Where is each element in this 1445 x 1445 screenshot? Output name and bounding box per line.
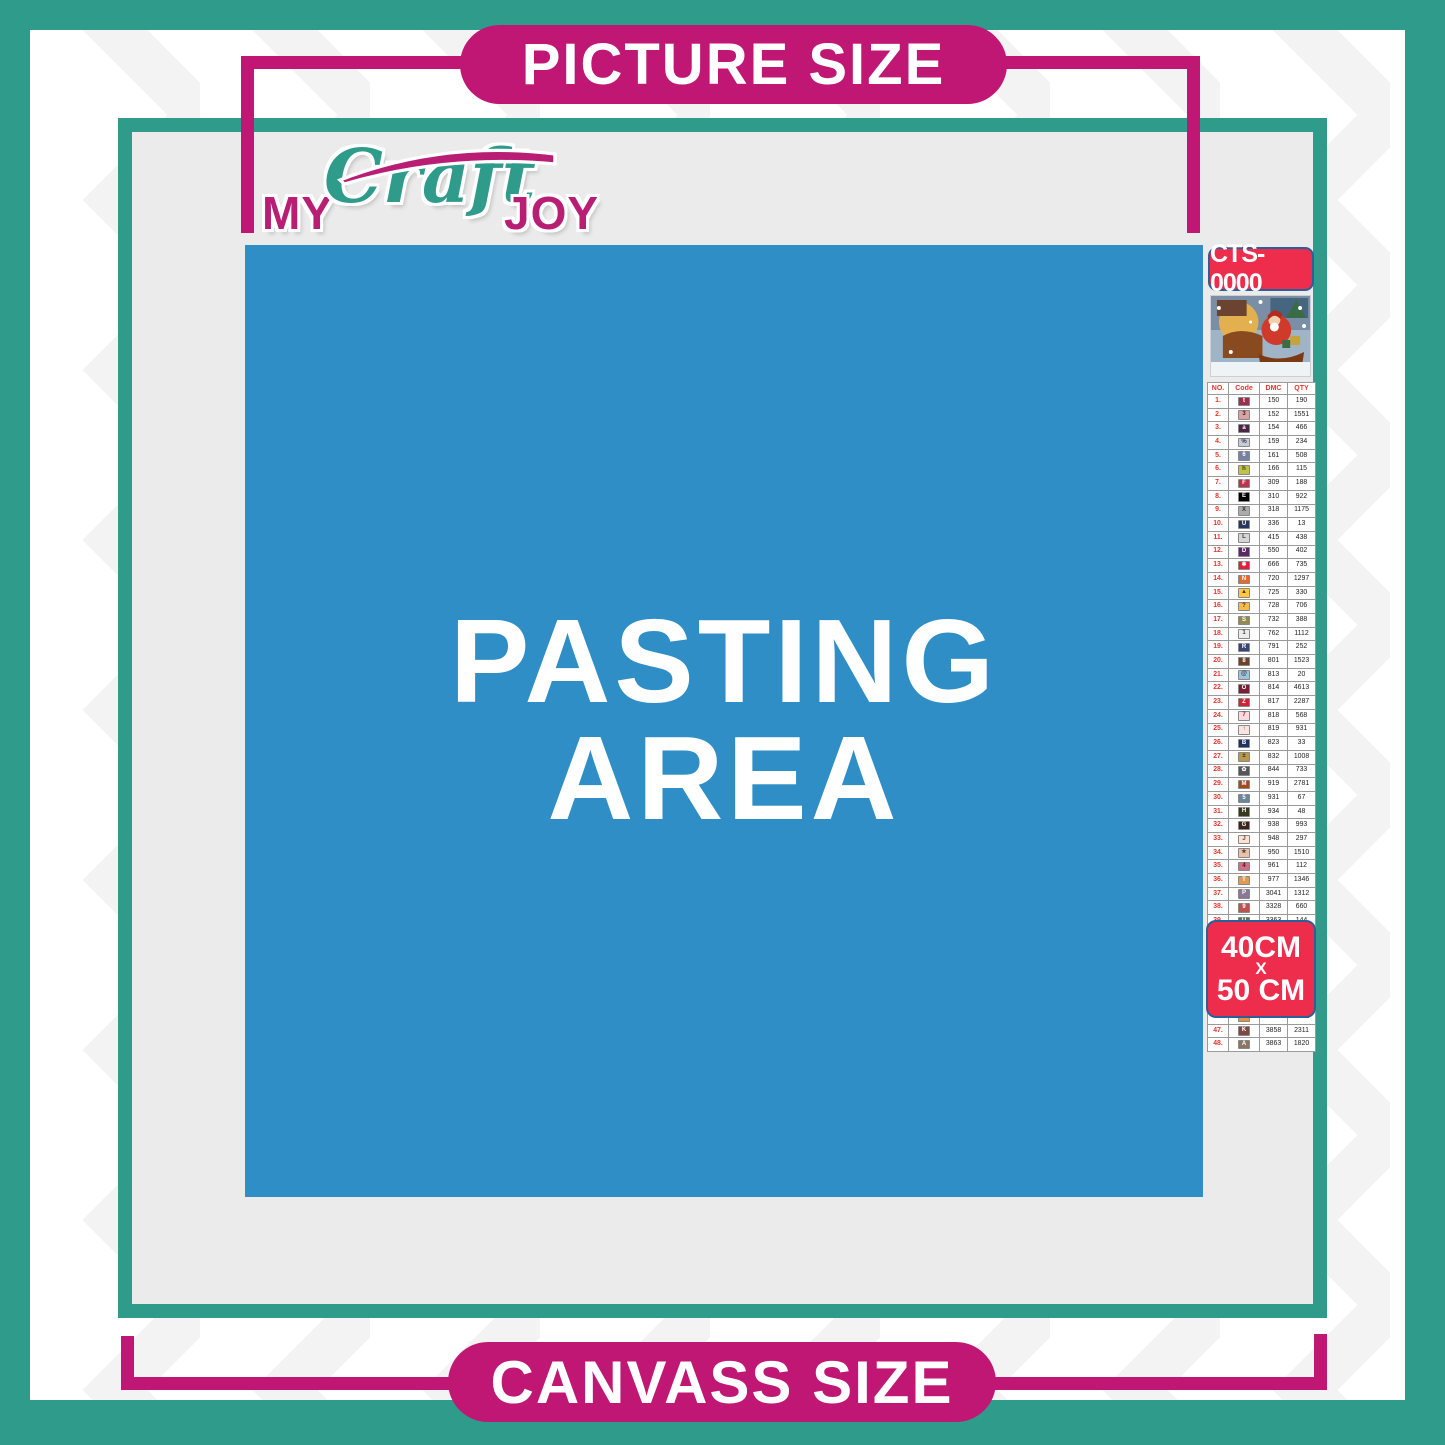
legend-row: 47.K38582311: [1208, 1024, 1316, 1038]
legend-code: ?: [1229, 600, 1260, 614]
legend-row: 32.G938993: [1208, 819, 1316, 833]
legend-symbol-swatch: J: [1238, 835, 1250, 845]
legend-row: 34.★9501510: [1208, 846, 1316, 860]
legend-dmc: 934: [1260, 805, 1288, 819]
legend-code: 6: [1229, 449, 1260, 463]
legend-no: 28.: [1208, 764, 1229, 778]
legend-symbol-swatch: ↑: [1238, 725, 1250, 735]
legend-no: 34.: [1208, 846, 1229, 860]
canvass-bracket-left: [121, 1336, 134, 1390]
legend-dmc: 720: [1260, 572, 1288, 586]
legend-qty: 190: [1288, 395, 1316, 409]
legend-dmc: 161: [1260, 449, 1288, 463]
legend-symbol-swatch: 7: [1238, 711, 1250, 721]
legend-symbol-swatch: A: [1238, 1040, 1250, 1050]
legend-dmc: 3041: [1260, 887, 1288, 901]
legend-symbol-swatch: U: [1238, 520, 1250, 530]
legend-symbol-swatch: h: [1238, 465, 1250, 475]
legend-symbol-swatch: 1: [1238, 629, 1250, 639]
legend-dmc: 938: [1260, 819, 1288, 833]
legend-qty: 1008: [1288, 750, 1316, 764]
legend-code: U: [1229, 518, 1260, 532]
legend-code: 8: [1229, 655, 1260, 669]
legend-qty: 330: [1288, 586, 1316, 600]
legend-no: 33.: [1208, 833, 1229, 847]
legend-header-cell: DMC: [1260, 383, 1288, 395]
legend-row: 24.7818568: [1208, 709, 1316, 723]
legend-dmc: 550: [1260, 545, 1288, 559]
legend-qty: 188: [1288, 477, 1316, 491]
legend-row: 30.593167: [1208, 791, 1316, 805]
legend-code: ±: [1229, 750, 1260, 764]
legend-no: 3.: [1208, 422, 1229, 436]
legend-symbol-swatch: N: [1238, 575, 1250, 585]
legend-no: 10.: [1208, 518, 1229, 532]
legend-dmc: 166: [1260, 463, 1288, 477]
legend-no: 36.: [1208, 874, 1229, 888]
legend-dmc: 801: [1260, 655, 1288, 669]
legend-row: 38.93328660: [1208, 901, 1316, 915]
legend-dmc: 961: [1260, 860, 1288, 874]
legend-qty: 1346: [1288, 874, 1316, 888]
legend-dmc: 336: [1260, 518, 1288, 532]
legend-symbol-swatch: ✿: [1238, 766, 1250, 776]
legend-row: 17.S732388: [1208, 614, 1316, 628]
legend-symbol-swatch: %: [1238, 438, 1250, 448]
legend-row: 48.A38631820: [1208, 1038, 1316, 1052]
legend-no: 23.: [1208, 696, 1229, 710]
legend-code: E: [1229, 490, 1260, 504]
legend-row: 37.P30411312: [1208, 887, 1316, 901]
legend-symbol-swatch: S: [1238, 616, 1250, 626]
legend-row: 6.h166115: [1208, 463, 1316, 477]
legend-code: S: [1229, 614, 1260, 628]
legend-row: 10.U33613: [1208, 518, 1316, 532]
legend-symbol-swatch: @: [1238, 670, 1250, 680]
legend-row: 20.88011523: [1208, 655, 1316, 669]
canvass-size-badge: CANVASS SIZE: [448, 1342, 996, 1422]
legend-dmc: 948: [1260, 833, 1288, 847]
legend-no: 16.: [1208, 600, 1229, 614]
legend-row: 14.N7201297: [1208, 572, 1316, 586]
legend-code: 4: [1229, 860, 1260, 874]
legend-dmc: 154: [1260, 422, 1288, 436]
legend-code: J: [1229, 833, 1260, 847]
legend-no: 6.: [1208, 463, 1229, 477]
legend-qty: 706: [1288, 600, 1316, 614]
legend-symbol-swatch: H: [1238, 807, 1250, 817]
legend-row: 1.t150190: [1208, 395, 1316, 409]
legend-no: 26.: [1208, 737, 1229, 751]
legend-no: 30.: [1208, 791, 1229, 805]
legend-row: 31.H93448: [1208, 805, 1316, 819]
legend-dmc: 150: [1260, 395, 1288, 409]
legend-row: 9.X3181175: [1208, 504, 1316, 518]
legend-symbol-swatch: t: [1238, 397, 1250, 407]
legend-symbol-swatch: ★: [1238, 848, 1250, 858]
christmas-scene-icon: [1211, 296, 1310, 376]
legend-no: 7.: [1208, 477, 1229, 491]
legend-code: A: [1229, 1038, 1260, 1052]
legend-row: 28.✿844733: [1208, 764, 1316, 778]
legend-dmc: 919: [1260, 778, 1288, 792]
legend-no: 1.: [1208, 395, 1229, 409]
legend-dmc: 152: [1260, 408, 1288, 422]
legend-qty: 568: [1288, 709, 1316, 723]
legend-qty: 1551: [1288, 408, 1316, 422]
legend-row: 3.a154466: [1208, 422, 1316, 436]
legend-qty: 733: [1288, 764, 1316, 778]
legend-symbol-swatch: ±: [1238, 752, 1250, 762]
legend-dmc: 819: [1260, 723, 1288, 737]
legend-no: 4.: [1208, 436, 1229, 450]
legend-code: L: [1229, 531, 1260, 545]
logo-brush-swoosh-icon: [340, 148, 555, 184]
legend-code: X: [1229, 504, 1260, 518]
legend-symbol-swatch: M: [1238, 780, 1250, 790]
legend-row: 23.Z8172287: [1208, 696, 1316, 710]
legend-qty: 735: [1288, 559, 1316, 573]
legend-no: 47.: [1208, 1024, 1229, 1038]
legend-dmc: 728: [1260, 600, 1288, 614]
legend-row: 19.R791252: [1208, 641, 1316, 655]
legend-symbol-swatch: E: [1238, 492, 1250, 502]
legend-no: 14.: [1208, 572, 1229, 586]
legend-code: 5: [1229, 791, 1260, 805]
legend-code: R: [1229, 641, 1260, 655]
legend-dmc: 732: [1260, 614, 1288, 628]
legend-code: ↑: [1229, 723, 1260, 737]
legend-no: 21.: [1208, 668, 1229, 682]
legend-symbol-swatch: 5: [1238, 794, 1250, 804]
legend-qty: 1297: [1288, 572, 1316, 586]
legend-row: 33.J948297: [1208, 833, 1316, 847]
legend-dmc: 3863: [1260, 1038, 1288, 1052]
legend-row: 25.↑819931: [1208, 723, 1316, 737]
picture-size-badge: PICTURE SIZE: [460, 25, 1007, 104]
legend-symbol-swatch: 8: [1238, 657, 1250, 667]
legend-dmc: 666: [1260, 559, 1288, 573]
legend-no: 22.: [1208, 682, 1229, 696]
legend-code: F: [1229, 477, 1260, 491]
legend-qty: 4613: [1288, 682, 1316, 696]
legend-dmc: 159: [1260, 436, 1288, 450]
legend-no: 20.: [1208, 655, 1229, 669]
legend-code: 7: [1229, 709, 1260, 723]
legend-code: M: [1229, 778, 1260, 792]
legend-qty: 660: [1288, 901, 1316, 915]
sku-label: CTS-0000: [1210, 240, 1312, 298]
legend-qty: 402: [1288, 545, 1316, 559]
pasting-area: PASTING AREA: [245, 245, 1203, 1197]
legend-symbol-swatch: Z: [1238, 698, 1250, 708]
legend-no: 15.: [1208, 586, 1229, 600]
legend-no: 31.: [1208, 805, 1229, 819]
legend-code: Z: [1229, 696, 1260, 710]
logo-joy: JOY: [504, 186, 599, 240]
legend-symbol-swatch: K: [1238, 1026, 1250, 1036]
legend-symbol-swatch: O: [1238, 684, 1250, 694]
legend-header-row: NO.CodeDMCQTY: [1208, 383, 1316, 395]
legend-qty: 2781: [1288, 778, 1316, 792]
legend-row: 21.@81320: [1208, 668, 1316, 682]
legend-dmc: 309: [1260, 477, 1288, 491]
legend-header-cell: QTY: [1288, 383, 1316, 395]
legend-no: 5.: [1208, 449, 1229, 463]
legend-header-cell: NO.: [1208, 383, 1229, 395]
legend-row: 11.L415438: [1208, 531, 1316, 545]
legend-symbol-swatch: ✱: [1238, 561, 1250, 571]
legend-symbol-swatch: 6: [1238, 451, 1250, 461]
legend-qty: 115: [1288, 463, 1316, 477]
legend-code: h: [1229, 463, 1260, 477]
legend-row: 13.✱666735: [1208, 559, 1316, 573]
legend-dmc: 762: [1260, 627, 1288, 641]
legend-symbol-swatch: B: [1238, 739, 1250, 749]
legend-dmc: 977: [1260, 874, 1288, 888]
legend-qty: 20: [1288, 668, 1316, 682]
legend-qty: 1312: [1288, 887, 1316, 901]
legend-symbol-swatch: G: [1238, 821, 1250, 831]
legend-dmc: 817: [1260, 696, 1288, 710]
legend-qty: 438: [1288, 531, 1316, 545]
legend-code: D: [1229, 545, 1260, 559]
legend-symbol-swatch: a: [1238, 424, 1250, 434]
legend-no: 48.: [1208, 1038, 1229, 1052]
legend-code: a: [1229, 422, 1260, 436]
brand-logo: MY Craft JOY: [262, 146, 562, 248]
canvass-size-label: CANVASS SIZE: [491, 1348, 954, 1417]
legend-code: ✿: [1229, 764, 1260, 778]
legend-header-cell: Code: [1229, 383, 1260, 395]
legend-dmc: 725: [1260, 586, 1288, 600]
legend-dmc: 3858: [1260, 1024, 1288, 1038]
legend-symbol-swatch: 9: [1238, 903, 1250, 913]
legend-dmc: 415: [1260, 531, 1288, 545]
legend-no: 12.: [1208, 545, 1229, 559]
legend-dmc: 931: [1260, 791, 1288, 805]
legend-code: ★: [1229, 846, 1260, 860]
legend-no: 9.: [1208, 504, 1229, 518]
legend-qty: 33: [1288, 737, 1316, 751]
dimension-width: 40CM: [1221, 934, 1301, 961]
legend-no: 8.: [1208, 490, 1229, 504]
pasting-area-line2: AREA: [547, 721, 900, 838]
legend-no: 37.: [1208, 887, 1229, 901]
legend-no: 18.: [1208, 627, 1229, 641]
picture-bracket-right: [1187, 56, 1200, 233]
legend-no: 32.: [1208, 819, 1229, 833]
legend-symbol-swatch: P: [1238, 889, 1250, 899]
legend-dmc: 844: [1260, 764, 1288, 778]
legend-dmc: 318: [1260, 504, 1288, 518]
legend-no: 27.: [1208, 750, 1229, 764]
legend-row: 29.M9192781: [1208, 778, 1316, 792]
legend-row: 35.4961112: [1208, 860, 1316, 874]
legend-code: ▲: [1229, 586, 1260, 600]
legend-qty: 13: [1288, 518, 1316, 532]
legend-row: 7.F309188: [1208, 477, 1316, 491]
legend-code: K: [1229, 1024, 1260, 1038]
legend-symbol-swatch: ?: [1238, 602, 1250, 612]
legend-qty: 2287: [1288, 696, 1316, 710]
legend-code: 3: [1229, 408, 1260, 422]
legend-no: 35.: [1208, 860, 1229, 874]
legend-no: 13.: [1208, 559, 1229, 573]
sku-badge: CTS-0000: [1208, 247, 1314, 291]
legend-code: P: [1229, 887, 1260, 901]
legend-qty: 48: [1288, 805, 1316, 819]
legend-qty: 388: [1288, 614, 1316, 628]
legend-code: B: [1229, 737, 1260, 751]
picture-bracket-left: [241, 56, 254, 233]
legend-no: 38.: [1208, 901, 1229, 915]
legend-no: 11.: [1208, 531, 1229, 545]
legend-qty: 1820: [1288, 1038, 1316, 1052]
legend-qty: 1112: [1288, 627, 1316, 641]
legend-no: 24.: [1208, 709, 1229, 723]
legend-dmc: 832: [1260, 750, 1288, 764]
legend-row: 15.▲725330: [1208, 586, 1316, 600]
legend-dmc: 310: [1260, 490, 1288, 504]
legend-no: 25.: [1208, 723, 1229, 737]
legend-qty: 112: [1288, 860, 1316, 874]
legend-qty: 252: [1288, 641, 1316, 655]
legend-row: 26.B82333: [1208, 737, 1316, 751]
legend-code: O: [1229, 682, 1260, 696]
legend-code: T: [1229, 874, 1260, 888]
legend-dmc: 813: [1260, 668, 1288, 682]
legend-dmc: 823: [1260, 737, 1288, 751]
legend-row: 8.E310922: [1208, 490, 1316, 504]
legend-symbol-swatch: 4: [1238, 862, 1250, 872]
legend-symbol-swatch: R: [1238, 643, 1250, 653]
legend-qty: 1510: [1288, 846, 1316, 860]
legend-symbol-swatch: T: [1238, 876, 1250, 886]
legend-symbol-swatch: L: [1238, 533, 1250, 543]
legend-symbol-swatch: D: [1238, 547, 1250, 557]
dimension-height: 50 CM: [1217, 977, 1305, 1004]
design-thumbnail: [1210, 295, 1311, 377]
legend-row: 2.31521551: [1208, 408, 1316, 422]
legend-dmc: 950: [1260, 846, 1288, 860]
legend-code: N: [1229, 572, 1260, 586]
legend-row: 18.17621112: [1208, 627, 1316, 641]
legend-no: 19.: [1208, 641, 1229, 655]
legend-qty: 2311: [1288, 1024, 1316, 1038]
legend-row: 16.?728706: [1208, 600, 1316, 614]
legend-symbol-swatch: ▲: [1238, 588, 1250, 598]
legend-dmc: 814: [1260, 682, 1288, 696]
legend-row: 4.%159234: [1208, 436, 1316, 450]
pasting-area-line1: PASTING: [450, 604, 998, 721]
legend-no: 29.: [1208, 778, 1229, 792]
diamond-painting-layout-poster: PASTING AREA PICTURE SIZE CANVASS SIZE M…: [0, 0, 1445, 1445]
legend-qty: 931: [1288, 723, 1316, 737]
legend-code: %: [1229, 436, 1260, 450]
legend-symbol-swatch: 3: [1238, 410, 1250, 420]
legend-dmc: 818: [1260, 709, 1288, 723]
legend-no: 17.: [1208, 614, 1229, 628]
legend-qty: 234: [1288, 436, 1316, 450]
legend-row: 12.D550402: [1208, 545, 1316, 559]
canvas-dimensions-badge: 40CM X 50 CM: [1206, 920, 1316, 1018]
legend-code: G: [1229, 819, 1260, 833]
legend-qty: 466: [1288, 422, 1316, 436]
logo-my: MY: [262, 186, 333, 240]
legend-qty: 1523: [1288, 655, 1316, 669]
legend-qty: 993: [1288, 819, 1316, 833]
legend-row: 22.O8144613: [1208, 682, 1316, 696]
legend-symbol-swatch: F: [1238, 479, 1250, 489]
legend-code: ✱: [1229, 559, 1260, 573]
legend-row: 27.±8321008: [1208, 750, 1316, 764]
legend-code: H: [1229, 805, 1260, 819]
legend-dmc: 791: [1260, 641, 1288, 655]
legend-qty: 508: [1288, 449, 1316, 463]
legend-qty: 297: [1288, 833, 1316, 847]
picture-size-label: PICTURE SIZE: [522, 31, 946, 98]
legend-code: 9: [1229, 901, 1260, 915]
canvass-bracket-right: [1314, 1334, 1327, 1390]
legend-qty: 67: [1288, 791, 1316, 805]
legend-no: 2.: [1208, 408, 1229, 422]
legend-qty: 922: [1288, 490, 1316, 504]
legend-code: t: [1229, 395, 1260, 409]
legend-row: 36.T9771346: [1208, 874, 1316, 888]
legend-row: 5.6161508: [1208, 449, 1316, 463]
legend-symbol-swatch: X: [1238, 506, 1250, 516]
legend-code: 1: [1229, 627, 1260, 641]
legend-dmc: 3328: [1260, 901, 1288, 915]
legend-qty: 1175: [1288, 504, 1316, 518]
legend-code: @: [1229, 668, 1260, 682]
